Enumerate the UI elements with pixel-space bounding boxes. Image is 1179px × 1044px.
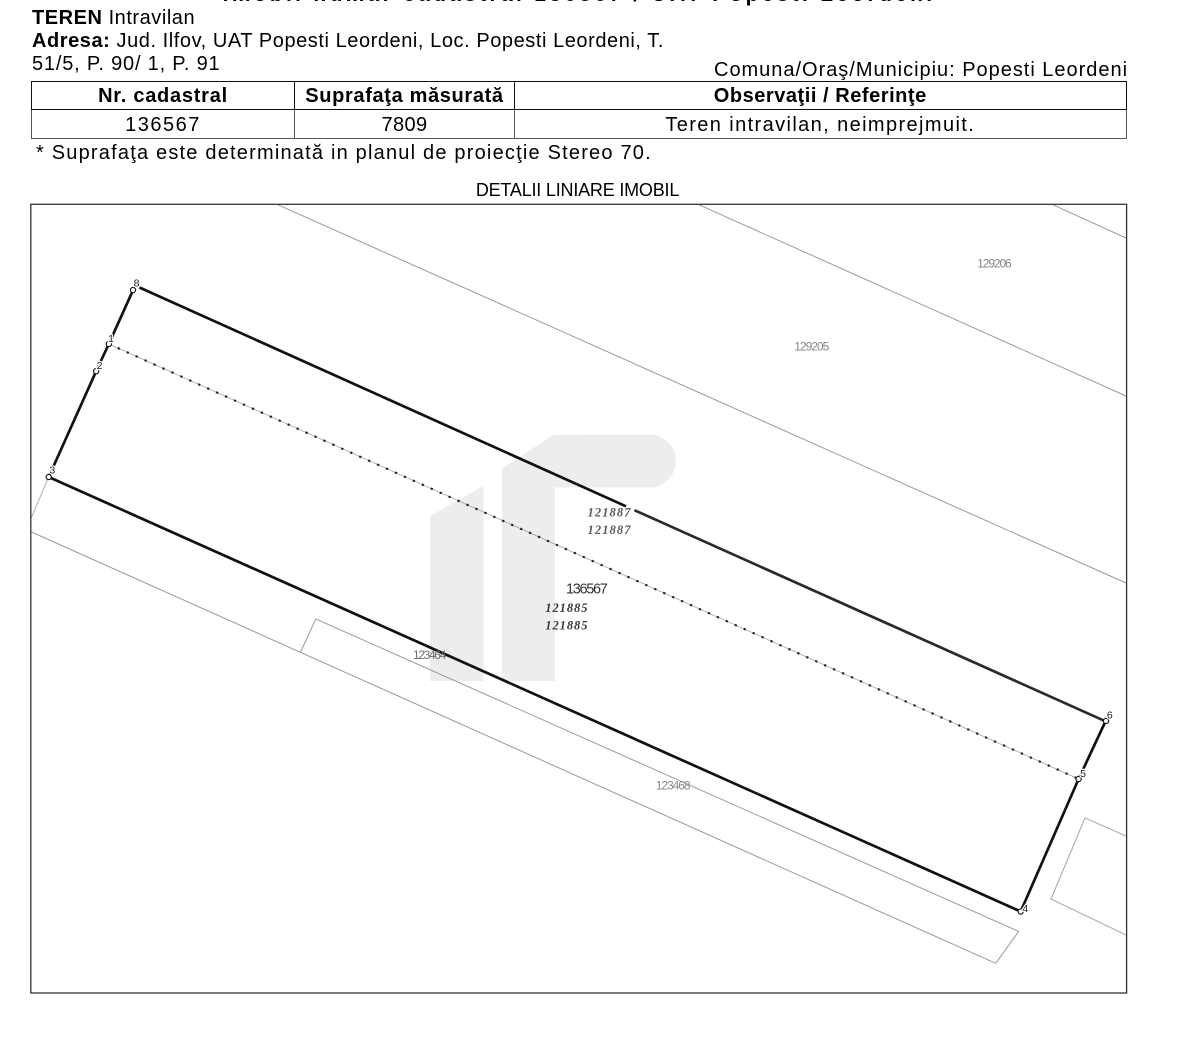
svg-text:6: 6 (1107, 710, 1113, 722)
svg-text:129206: 129206 (977, 257, 1012, 271)
svg-text:121885: 121885 (545, 601, 587, 615)
svg-text:136567: 136567 (566, 581, 608, 597)
svg-text:123464: 123464 (413, 648, 447, 662)
svg-text:121885: 121885 (545, 619, 587, 633)
svg-text:2: 2 (97, 360, 103, 372)
svg-text:3: 3 (49, 464, 55, 476)
svg-text:1: 1 (108, 333, 114, 345)
svg-text:123468: 123468 (656, 779, 691, 793)
svg-text:8: 8 (134, 277, 140, 289)
svg-text:5: 5 (1080, 768, 1086, 780)
svg-text:129205: 129205 (794, 340, 829, 354)
svg-text:4: 4 (1022, 903, 1028, 915)
svg-text:121887: 121887 (588, 523, 632, 537)
svg-text:121887: 121887 (588, 506, 632, 520)
